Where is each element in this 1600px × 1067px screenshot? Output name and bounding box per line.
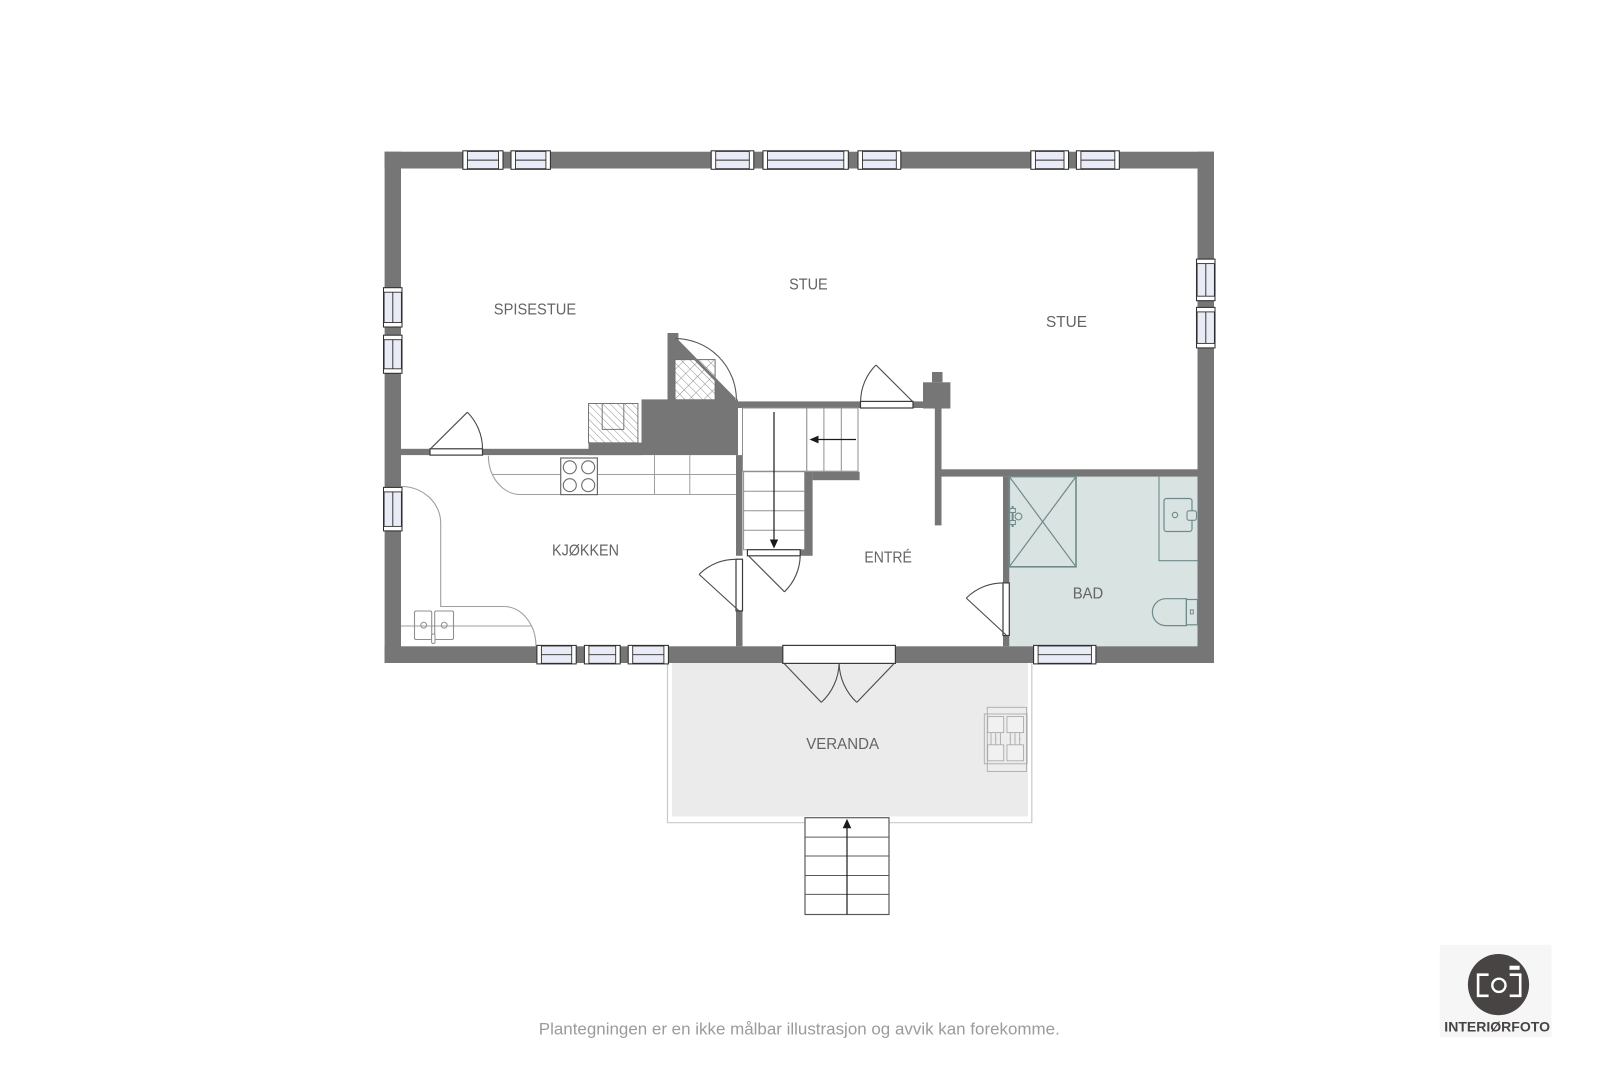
svg-text:BAD: BAD — [1073, 586, 1104, 603]
svg-text:SPISESTUE: SPISESTUE — [494, 301, 576, 318]
svg-text:STUE: STUE — [789, 277, 828, 294]
svg-text:Plantegningen er en ikke målba: Plantegningen er en ikke målbar illustra… — [539, 1019, 1060, 1038]
svg-text:STUE: STUE — [1046, 314, 1087, 331]
svg-text:VERANDA: VERANDA — [806, 736, 879, 753]
svg-text:INTERIØRFOTO: INTERIØRFOTO — [1444, 1018, 1550, 1034]
svg-text:KJØKKEN: KJØKKEN — [552, 542, 619, 559]
svg-text:ENTRÉ: ENTRÉ — [864, 548, 912, 567]
